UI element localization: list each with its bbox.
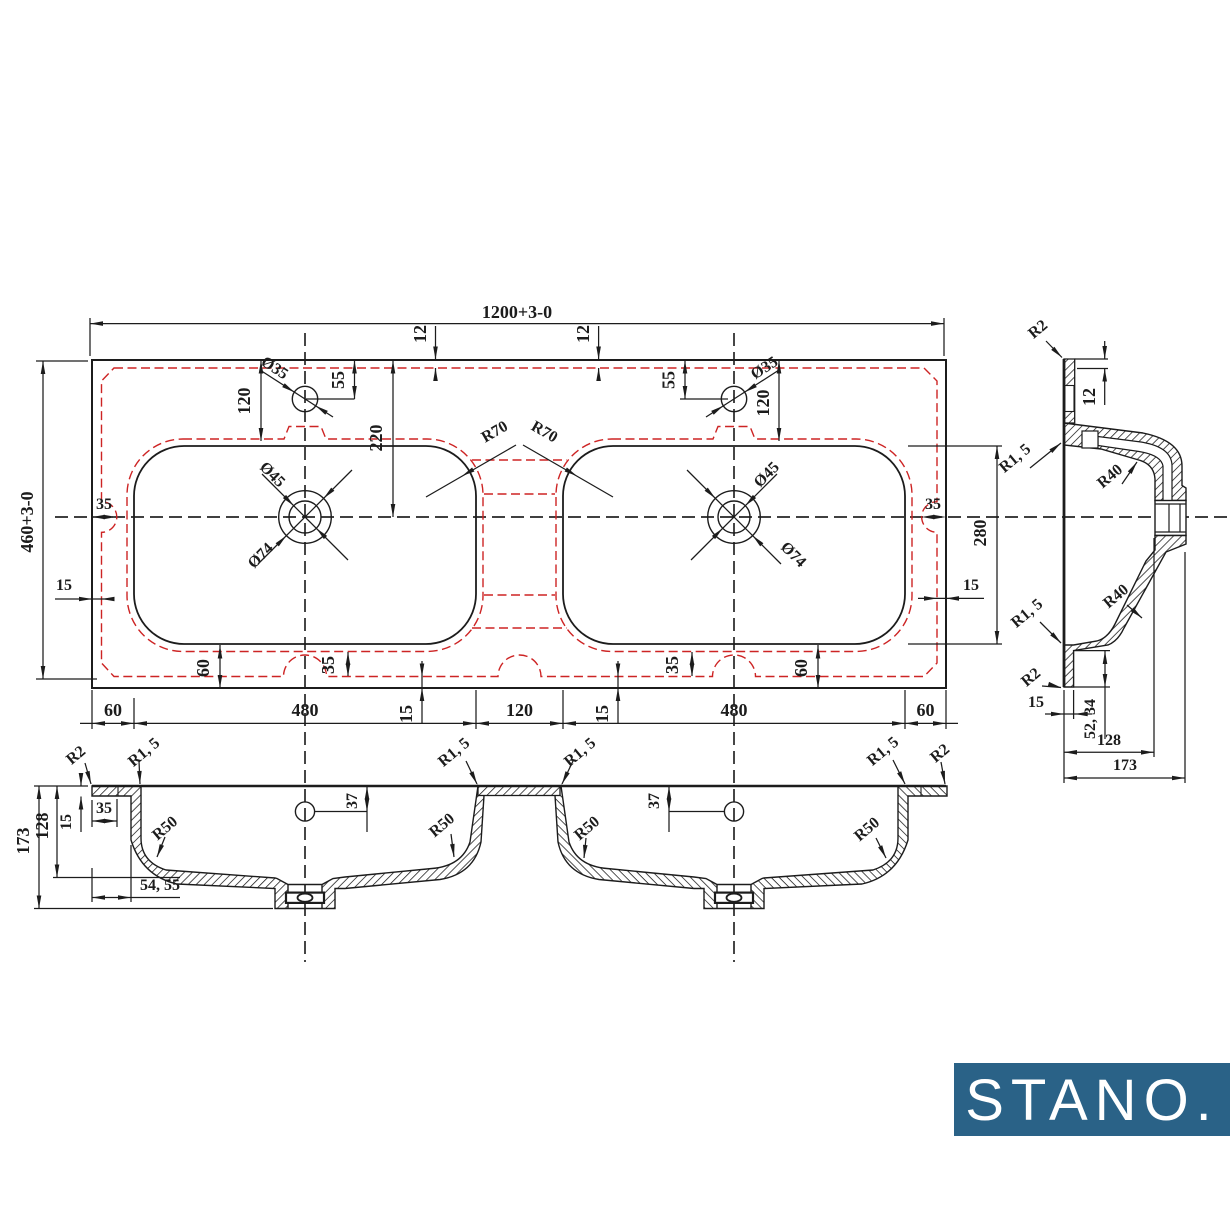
svg-text:35: 35 bbox=[318, 656, 338, 674]
svg-text:120: 120 bbox=[234, 388, 254, 415]
svg-text:220: 220 bbox=[366, 425, 386, 452]
svg-text:STANO.: STANO. bbox=[965, 1068, 1219, 1133]
svg-text:128: 128 bbox=[1097, 732, 1121, 749]
svg-text:15: 15 bbox=[56, 577, 72, 594]
svg-text:12: 12 bbox=[410, 325, 430, 343]
svg-text:60: 60 bbox=[193, 659, 213, 677]
svg-text:60: 60 bbox=[104, 700, 122, 720]
svg-text:55: 55 bbox=[659, 371, 679, 389]
svg-text:55: 55 bbox=[328, 371, 348, 389]
svg-text:37: 37 bbox=[344, 793, 361, 809]
svg-text:128: 128 bbox=[32, 813, 52, 840]
svg-text:173: 173 bbox=[13, 828, 33, 855]
svg-text:460+3-0: 460+3-0 bbox=[17, 491, 37, 552]
svg-text:35: 35 bbox=[925, 496, 941, 513]
svg-text:280: 280 bbox=[970, 520, 990, 547]
svg-text:173: 173 bbox=[1113, 757, 1137, 774]
svg-text:15: 15 bbox=[396, 705, 416, 723]
svg-text:480: 480 bbox=[292, 700, 319, 720]
svg-text:37: 37 bbox=[646, 793, 663, 809]
svg-text:120: 120 bbox=[506, 700, 533, 720]
svg-text:35: 35 bbox=[96, 800, 112, 817]
svg-text:12: 12 bbox=[1079, 388, 1099, 406]
svg-text:15: 15 bbox=[592, 705, 612, 723]
svg-text:12: 12 bbox=[573, 325, 593, 343]
svg-text:120: 120 bbox=[753, 390, 773, 417]
svg-text:60: 60 bbox=[917, 700, 935, 720]
svg-text:54, 55: 54, 55 bbox=[140, 877, 180, 894]
svg-text:35: 35 bbox=[662, 656, 682, 674]
svg-text:60: 60 bbox=[791, 659, 811, 677]
svg-text:15: 15 bbox=[1028, 694, 1044, 711]
svg-text:35: 35 bbox=[96, 496, 112, 513]
svg-text:15: 15 bbox=[963, 577, 979, 594]
svg-text:1200+3-0: 1200+3-0 bbox=[482, 302, 552, 322]
svg-text:480: 480 bbox=[721, 700, 748, 720]
svg-text:15: 15 bbox=[58, 814, 75, 830]
